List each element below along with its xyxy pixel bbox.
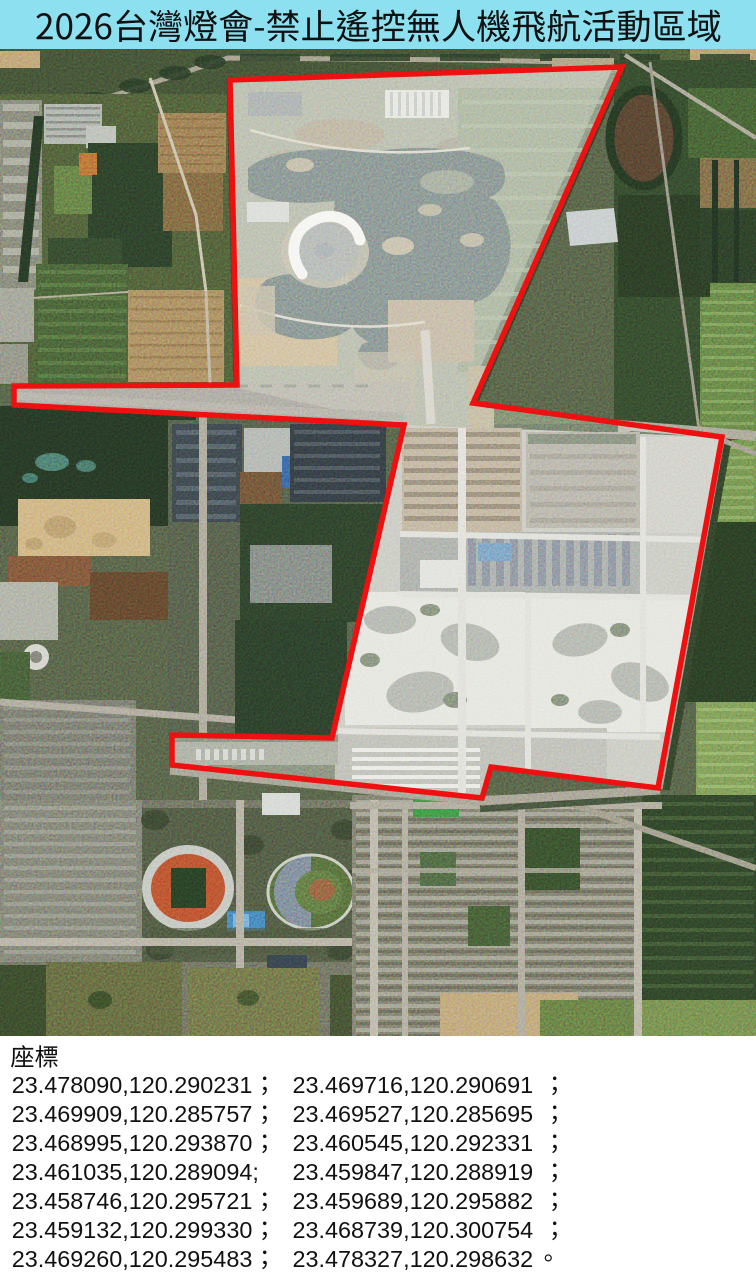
svg-text:23.478090,120.290231: 23.478090,120.290231 [12,1072,253,1098]
svg-text:23.468739,120.300754: 23.468739,120.300754 [293,1217,534,1243]
svg-text:23.459132,120.299330: 23.459132,120.299330 [12,1217,253,1243]
svg-text:23.469716,120.290691: 23.469716,120.290691 [293,1072,534,1098]
svg-text:23.459847,120.288919: 23.459847,120.288919 [293,1159,534,1185]
svg-text:23.468995,120.293870: 23.468995,120.293870 [12,1130,253,1156]
svg-text:23.469260,120.295483: 23.469260,120.295483 [12,1246,253,1272]
svg-text:23.478327,120.298632: 23.478327,120.298632 [293,1246,534,1272]
svg-text:23.461035,120.289094;: 23.461035,120.289094; [12,1159,259,1185]
svg-text:23.469527,120.285695: 23.469527,120.285695 [293,1101,534,1127]
svg-text:23.459689,120.295882: 23.459689,120.295882 [293,1188,534,1214]
svg-text:23.460545,120.292331: 23.460545,120.292331 [293,1130,534,1156]
svg-text:23.469909,120.285757: 23.469909,120.285757 [12,1101,253,1127]
svg-text:23.458746,120.295721: 23.458746,120.295721 [12,1188,253,1214]
